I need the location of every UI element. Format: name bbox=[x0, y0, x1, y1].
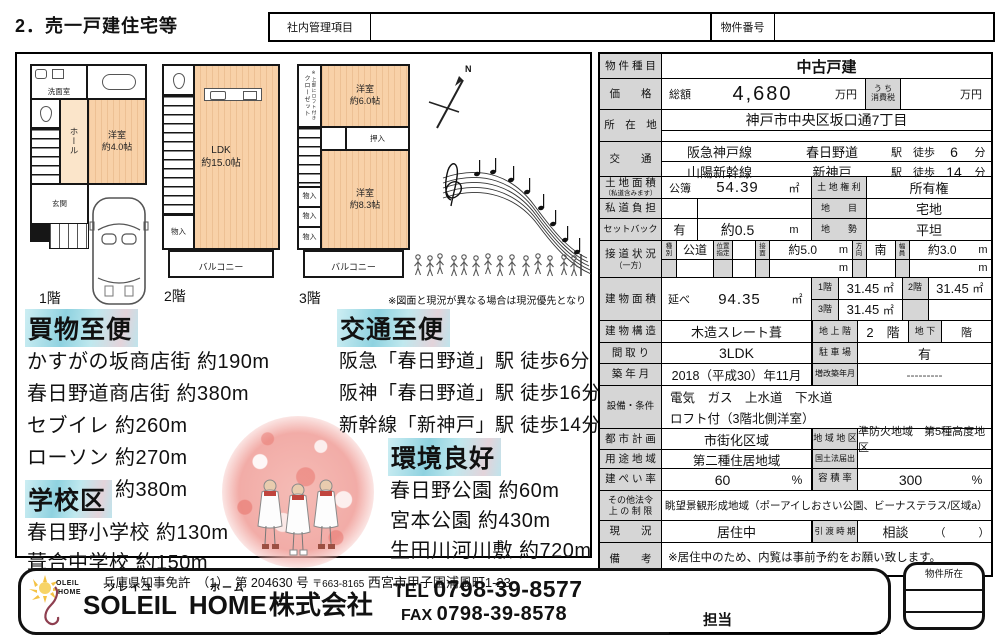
shopping-item: 春日野道商店街 約380m bbox=[27, 377, 249, 406]
coverage-unit: % bbox=[783, 473, 811, 487]
building-area-value: 94.35 bbox=[696, 291, 783, 308]
floor3-area-label: 3階 bbox=[812, 300, 839, 321]
structure-label: 建 物 構 造 bbox=[600, 321, 662, 342]
property-type-label: 物 件 種 目 bbox=[600, 54, 662, 78]
tel-number: 0798-39-8577 bbox=[433, 576, 582, 602]
section-title-school: 学校区 bbox=[25, 480, 112, 518]
row-price: 価 格 総額 4,680 万円 う ち 消費税 万円 bbox=[600, 79, 991, 110]
setback-unit: m bbox=[777, 219, 811, 240]
floor1-area-label: 1階 bbox=[812, 278, 839, 299]
ldk-name: LDK bbox=[211, 144, 230, 157]
building-area-nobe: 延べ bbox=[662, 291, 696, 307]
facilities-label: 設備・条件 bbox=[600, 386, 662, 428]
floorplan-floor2: LDK 約15.0帖 物入 バルコニー bbox=[162, 64, 280, 279]
private-road-flag bbox=[662, 199, 698, 218]
bedroom-3f-north: 洋室 約6.0帖 bbox=[320, 64, 410, 128]
environment-item: 宮本公園 約430m bbox=[390, 504, 551, 533]
road-face-unit: m bbox=[836, 244, 852, 256]
road-label: 接 道 状 況 bbox=[605, 248, 656, 261]
sink-icon bbox=[35, 69, 47, 79]
location-label: 所 在 地 bbox=[600, 110, 662, 141]
road-pos-label: 位置 指定 bbox=[713, 241, 733, 259]
location-box-divider bbox=[906, 589, 982, 591]
status-value: 居住中 bbox=[662, 521, 812, 542]
coverage-label: 建 ぺ い 率 bbox=[600, 469, 662, 490]
bedroom-1f-size: 約4.0帖 bbox=[102, 142, 133, 154]
floor2-tag: 2階 bbox=[164, 286, 186, 306]
bedroom-3f-north-size: 約6.0帖 bbox=[350, 96, 381, 108]
built-label: 築 年 月 bbox=[600, 364, 662, 385]
kokudo-label: 国土法届出 bbox=[812, 450, 858, 468]
city-plan-value: 市街化区域 bbox=[662, 429, 812, 449]
floorplan-floor3: 洋室 約6.0帖 クローゼット ※上部にロフト付き 押入 洋室 約8.3帖 物入… bbox=[297, 64, 410, 279]
row-road: 接 道 状 況（一方） 種 別 公道 位置 指定 接 面 約5.0 m 方 向 … bbox=[600, 241, 991, 278]
row-use-district: 用 途 地 域 第二種住居地域 国土法届出 bbox=[600, 450, 991, 469]
staff-in-charge-field: 担当 bbox=[669, 609, 881, 634]
handover-label: 引 渡 時 期 bbox=[812, 521, 858, 542]
environment-item: 春日野公園 約60m bbox=[390, 474, 559, 503]
tel-label: TEL bbox=[393, 581, 429, 602]
access1-walk: 駅 徒歩 bbox=[887, 144, 939, 160]
location-value: 神戸市中央区坂口通7丁目 bbox=[662, 110, 991, 131]
toilet-2f bbox=[162, 64, 195, 96]
section-title-environment: 環境良好 bbox=[388, 438, 501, 476]
bedroom-3f-south-name: 洋室 bbox=[356, 188, 374, 200]
floor2-area-label: 2階 bbox=[902, 278, 929, 299]
shopping-item: ローソン 約270m bbox=[27, 441, 188, 470]
row-setback: セットバック 有 約0.5 m 地 勢 平坦 bbox=[600, 219, 991, 241]
company-name-suffix: 株式会社 bbox=[269, 592, 373, 618]
floor1-tag: 1階 bbox=[39, 288, 61, 308]
internal-management-label: 社内管理項目 bbox=[270, 14, 371, 40]
kitchen-counter-icon bbox=[204, 88, 262, 101]
price-unit: 万円 bbox=[827, 79, 865, 109]
access1-line: 阪急神戸線 bbox=[662, 142, 777, 161]
environment-item: 生田川河川敷 約720m bbox=[390, 534, 592, 563]
page-title: 2．売一戸建住宅等 bbox=[15, 12, 178, 38]
row-land-area: 土 地 面 積（私道含みます） 公簿 54.39 ㎡ 土 地 権 利 所有権 bbox=[600, 177, 991, 199]
stairs-1f bbox=[30, 127, 61, 185]
road-dir-label: 方 向 bbox=[852, 241, 867, 259]
city-plan-label: 都 市 計 画 bbox=[600, 429, 662, 449]
setback-label: セットバック bbox=[600, 219, 662, 240]
bathtub-icon bbox=[102, 74, 136, 90]
row-property-type: 物 件 種 目 中古戸建 bbox=[600, 54, 991, 79]
company-name: SOLEILソレイユ HOMEホーム 株式会社 bbox=[83, 583, 373, 618]
handover-paren: （ ） bbox=[933, 524, 991, 540]
row-structure: 建 物 構 造 木造スレート葺 地 上 階 2 階 地 下 階 bbox=[600, 321, 991, 343]
winter-people-illustration bbox=[222, 416, 374, 568]
bedroom-1f: 洋室 約4.0帖 bbox=[87, 98, 147, 185]
below-ground-label: 地 下 bbox=[908, 321, 942, 342]
land-kobo: 公簿 bbox=[662, 177, 698, 198]
stairs-2f bbox=[162, 94, 195, 216]
road-width: 約3.0 bbox=[910, 241, 976, 258]
three-people-icon bbox=[252, 468, 344, 560]
road-line-2: m m bbox=[662, 260, 991, 278]
setback-has: 有 bbox=[662, 219, 698, 240]
setback-value: 約0.5 bbox=[698, 219, 777, 240]
row-other-laws: その他法令 上 の 制 限 眺望景観形成地域（ポーアイしおさい公園、ビーナステラ… bbox=[600, 491, 991, 521]
land-unit: ㎡ bbox=[777, 177, 811, 198]
road-face: 約5.0 bbox=[770, 241, 836, 258]
layout-value: 3LDK bbox=[662, 343, 812, 363]
company-footer-bar: OLEIL HOME 兵庫県知事免許 （1） 第 204630 号 〒663-8… bbox=[18, 568, 891, 635]
chimoku-label: 地 目 bbox=[811, 199, 867, 218]
far-value: 300 bbox=[858, 472, 963, 488]
top-management-strip: 社内管理項目 物件番号 bbox=[268, 12, 995, 42]
land-right-value: 所有権 bbox=[867, 177, 991, 198]
hall-label: ホール bbox=[68, 127, 80, 156]
compass-icon bbox=[425, 70, 477, 134]
road-face-label: 接 面 bbox=[755, 241, 770, 259]
above-ground-label: 地 上 階 bbox=[812, 321, 858, 342]
other-laws-value: 眺望景観形成地域（ポーアイしおさい公園、ビーナステラス/区域a） bbox=[662, 491, 991, 520]
shopping-item: セブイレ 約260m bbox=[27, 409, 188, 438]
storage-3f-3: 物入 bbox=[297, 226, 322, 250]
row-status: 現 況 居住中 引 渡 時 期 相談 （ ） bbox=[600, 521, 991, 543]
district-label: 地 域 地 区 bbox=[812, 429, 858, 449]
price-value: 4,680 bbox=[698, 79, 827, 109]
ldk-size: 約15.0帖 bbox=[201, 157, 240, 170]
road-kind: 公道 bbox=[677, 241, 713, 258]
use-district-label: 用 途 地 域 bbox=[600, 450, 662, 468]
washer-icon bbox=[52, 69, 64, 79]
parking-value: 有 bbox=[858, 343, 991, 363]
row-private-road: 私 道 負 担 地 目 宅地 bbox=[600, 199, 991, 219]
below-ground-value: 階 bbox=[942, 321, 991, 342]
fax-label: FAX bbox=[401, 607, 432, 624]
road-kind-label: 種 別 bbox=[662, 241, 677, 259]
floor1-area: 31.45 ㎡ bbox=[839, 280, 902, 296]
layout-label: 間 取 り bbox=[600, 343, 662, 363]
washroom-label: 洗面室 bbox=[32, 87, 86, 97]
company-name-en-1: SOLEIL bbox=[83, 590, 177, 620]
far-label: 容 積 率 bbox=[812, 469, 858, 490]
storage-3f-1: 物入 bbox=[297, 186, 322, 208]
floor3-area: 31.45 ㎡ bbox=[839, 302, 902, 318]
land-right-label: 土 地 権 利 bbox=[811, 177, 867, 198]
road2-face-unit: m bbox=[836, 262, 852, 274]
section-title-shopping: 買物至便 bbox=[25, 309, 138, 347]
private-road-value bbox=[698, 199, 811, 218]
row-building-area: 建 物 面 積 延べ 94.35 ㎡ 1階 31.45 ㎡ 2階 31.45 ㎡… bbox=[600, 278, 991, 321]
closet-note: ※上部にロフト付き bbox=[311, 71, 317, 121]
entrance-corner-block bbox=[30, 223, 49, 242]
internal-management-field bbox=[371, 14, 712, 40]
toilet-1f bbox=[30, 98, 61, 129]
road-line-1: 種 別 公道 位置 指定 接 面 約5.0 m 方 向 南 幅 員 約3.0 m bbox=[662, 241, 991, 260]
row-built: 築 年 月 2018（平成30）年11月 増改築年月 --------- bbox=[600, 364, 991, 386]
built-value: 2018（平成30）年11月 bbox=[662, 364, 812, 385]
building-area-unit: ㎡ bbox=[783, 291, 811, 307]
bedroom-3f-south-size: 約8.3帖 bbox=[350, 200, 381, 212]
coverage-value: 60 bbox=[662, 472, 783, 488]
row-city-plan: 都 市 計 画 市街化区域 地 域 地 区 準防火地域 第5種高度地区 bbox=[600, 429, 991, 450]
tax-value bbox=[901, 79, 951, 109]
use-district-value: 第二種住居地域 bbox=[662, 450, 812, 468]
balcony-3f: バルコニー bbox=[303, 250, 404, 278]
land-label: 土 地 面 積 bbox=[605, 177, 656, 190]
oshiire-3f: 押入 bbox=[345, 126, 410, 151]
toilet-icon bbox=[40, 106, 52, 122]
floor3-tag: 3階 bbox=[299, 288, 321, 308]
floor2-area: 31.45 ㎡ bbox=[929, 280, 992, 296]
company-name-en-2: HOME bbox=[189, 590, 267, 620]
road-width-label: 幅 員 bbox=[895, 241, 910, 259]
access1-unit: 分 bbox=[969, 144, 991, 160]
logo-text-line2: HOME bbox=[58, 589, 81, 596]
floorplan-panel: 洗面室 ホール 洋室 約4.0帖 玄関 bbox=[15, 52, 592, 558]
oshiire-label: 押入 bbox=[370, 134, 385, 144]
car-icon bbox=[88, 192, 150, 310]
balcony-2f-label: バルコニー bbox=[199, 262, 244, 274]
property-type-value: 中古戸建 bbox=[662, 54, 991, 78]
road-sub-label: （一方） bbox=[615, 261, 647, 271]
access1-min: 6 bbox=[939, 144, 969, 160]
balcony-2f: バルコニー bbox=[168, 250, 274, 278]
status-label: 現 況 bbox=[600, 521, 662, 542]
entrance-label: 玄関 bbox=[52, 199, 67, 209]
section-title-transport: 交通至便 bbox=[337, 309, 450, 347]
location-line2 bbox=[662, 131, 991, 141]
hall-1f: ホール bbox=[59, 98, 89, 185]
location-box-divider bbox=[906, 611, 982, 613]
bathroom bbox=[86, 64, 147, 100]
stairs-3f bbox=[297, 126, 322, 188]
price-prefix: 総額 bbox=[662, 79, 698, 109]
closet-label: クローゼット bbox=[302, 75, 311, 117]
property-number-field bbox=[775, 14, 993, 40]
property-table: 物 件 種 目 中古戸建 価 格 総額 4,680 万円 う ち 消費税 万円 … bbox=[598, 52, 993, 577]
far-unit: % bbox=[963, 473, 991, 487]
tax-unit: 万円 bbox=[951, 79, 991, 109]
compass-n-label: N bbox=[465, 64, 472, 74]
tel-line: TEL 0798-39-8577 bbox=[393, 576, 583, 603]
facilities-line1: 電気 ガス 上水道 下水道 bbox=[670, 387, 991, 406]
private-road-label: 私 道 負 担 bbox=[600, 199, 662, 218]
school-item: 春日野小学校 約130m bbox=[27, 516, 229, 545]
row-coverage: 建 ぺ い 率 60 % 容 積 率 300 % bbox=[600, 469, 991, 491]
bedroom-1f-name: 洋室 bbox=[108, 130, 126, 142]
chisei-label: 地 勢 bbox=[811, 219, 867, 240]
road-width-unit: m bbox=[975, 244, 991, 256]
people-silhouettes-decoration bbox=[413, 252, 585, 278]
fax-number: 0798-39-8578 bbox=[437, 603, 568, 625]
fax-line: FAX 0798-39-8578 bbox=[401, 603, 567, 626]
access-label: 交 通 bbox=[600, 142, 662, 176]
other-laws-label: その他法令 上 の 制 限 bbox=[600, 491, 662, 520]
property-location-label: 物件所在 bbox=[906, 566, 982, 580]
chimoku-value: 宅地 bbox=[867, 199, 991, 218]
toilet-icon-2f bbox=[173, 73, 185, 89]
access-line-1: 阪急神戸線 春日野道 駅 徒歩 6 分 bbox=[662, 142, 991, 162]
row-layout: 間 取 り 3LDK 駐 車 場 有 bbox=[600, 343, 991, 364]
logo-text-line1: OLEIL bbox=[56, 580, 79, 587]
bedroom-3f-north-name: 洋室 bbox=[356, 84, 374, 96]
staff-label: 担当 bbox=[703, 613, 732, 629]
storage-3f-2: 物入 bbox=[297, 206, 322, 228]
transport-item: 阪急「春日野道」駅 徒歩6分 bbox=[339, 346, 590, 373]
row-location: 所 在 地 神戸市中央区坂口通7丁目 bbox=[600, 110, 991, 142]
transport-item: 新幹線「新神戸」駅 徒歩14分 bbox=[339, 410, 601, 437]
chisei-value: 平坦 bbox=[867, 219, 991, 240]
land-sub-label: （私道含みます） bbox=[605, 190, 657, 198]
parking-label: 駐 車 場 bbox=[812, 343, 858, 363]
renovation-value: --------- bbox=[858, 364, 991, 385]
closet-3f: クローゼット ※上部にロフト付き bbox=[297, 64, 322, 128]
property-location-box: 物件所在 bbox=[903, 562, 985, 630]
access1-station: 春日野道 bbox=[777, 142, 887, 161]
storage-2f: 物入 bbox=[162, 214, 195, 250]
building-area-label: 建 物 面 積 bbox=[600, 278, 662, 320]
tax-label: う ち 消費税 bbox=[865, 79, 901, 109]
transport-item: 阪神「春日野道」駅 徒歩16分 bbox=[339, 378, 601, 405]
renovation-label: 増改築年月 bbox=[812, 364, 858, 385]
property-number-label: 物件番号 bbox=[712, 14, 775, 40]
price-label: 価 格 bbox=[600, 79, 662, 109]
handover-value: 相談 bbox=[858, 522, 933, 541]
structure-value: 木造スレート葺 bbox=[662, 321, 812, 342]
washroom: 洗面室 bbox=[30, 64, 88, 100]
company-furigana-2: ホーム bbox=[189, 583, 267, 594]
district-value: 準防火地域 第5種高度地区 bbox=[858, 429, 991, 449]
floorplan-floor1: 洗面室 ホール 洋室 約4.0帖 玄関 bbox=[30, 64, 147, 310]
above-ground-value: 2 階 bbox=[858, 321, 908, 342]
company-furigana-1: ソレイユ bbox=[83, 583, 177, 594]
bedroom-3f-south: 洋室 約8.3帖 bbox=[320, 149, 410, 250]
land-value: 54.39 bbox=[698, 177, 777, 198]
storage-2f-label: 物入 bbox=[171, 227, 186, 237]
road2-width-unit: m bbox=[975, 262, 991, 274]
balcony-3f-label: バルコニー bbox=[331, 262, 376, 274]
kokudo-value bbox=[858, 450, 991, 468]
entrance-steps bbox=[49, 223, 89, 249]
entrance: 玄関 bbox=[30, 183, 89, 225]
road-dir: 南 bbox=[867, 241, 895, 258]
shopping-item: かすがの坂商店街 約190m bbox=[27, 345, 270, 374]
row-access: 交 通 阪急神戸線 春日野道 駅 徒歩 6 分 山陽新幹線 新神戸 駅 徒歩 1… bbox=[600, 142, 991, 177]
